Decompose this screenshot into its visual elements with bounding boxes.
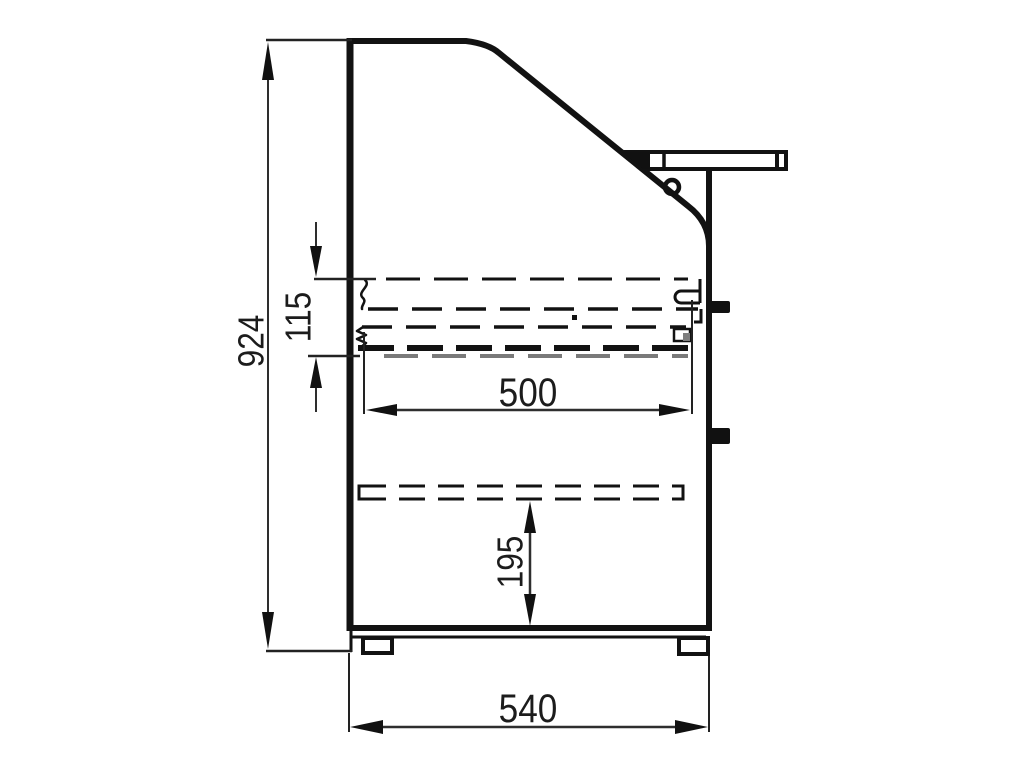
dim-924-arrow-down-icon	[262, 612, 274, 649]
left-foot	[363, 638, 392, 653]
dim-195-value: 195	[491, 536, 531, 589]
dim-540-arrow-right-icon	[675, 720, 708, 734]
dim-500-arrow-right-icon	[659, 404, 690, 416]
rail-right-latch-fill	[683, 333, 690, 341]
rail-right-l-end	[694, 309, 701, 322]
rail-left-break-squiggle	[361, 280, 367, 309]
lower-shelf-right-cap	[673, 486, 683, 499]
lower-shelf-left-cap	[359, 486, 369, 499]
dim-195-arrow-down-icon	[524, 594, 536, 626]
lower-shelf	[359, 486, 683, 499]
dim-115-arrow-up-icon	[310, 357, 322, 388]
rail-center-dot	[572, 315, 577, 320]
dim-lower-shelf-height: 195	[491, 501, 536, 626]
dim-924-arrow-up-icon	[262, 42, 274, 80]
cabinet-side-elevation-drawing: 924 115 500 195	[0, 0, 1024, 768]
dim-500-value: 500	[499, 370, 558, 415]
rail-right-hook	[675, 279, 700, 303]
dim-overall-height: 924	[232, 40, 352, 651]
knob-lower	[710, 428, 730, 444]
dim-924-value: 924	[232, 315, 272, 368]
knob-upper	[710, 301, 730, 313]
side-knobs	[710, 301, 730, 444]
dim-115-value: 115	[279, 292, 319, 342]
dim-115-arrow-down-icon	[310, 246, 322, 277]
drawing-canvas: 924 115 500 195	[0, 0, 1024, 768]
tray-screw-icon	[665, 180, 679, 194]
right-foot	[679, 638, 708, 654]
dim-540-value: 540	[499, 686, 558, 731]
top-and-slant-edge	[347, 41, 709, 246]
dim-rail-gap: 115	[279, 222, 376, 412]
dim-base-width: 540	[349, 653, 709, 734]
dim-195-arrow-up-icon	[524, 501, 536, 533]
dim-540-arrow-left-icon	[350, 720, 383, 734]
dim-500-arrow-left-icon	[366, 404, 397, 416]
paper-rails	[357, 279, 701, 356]
